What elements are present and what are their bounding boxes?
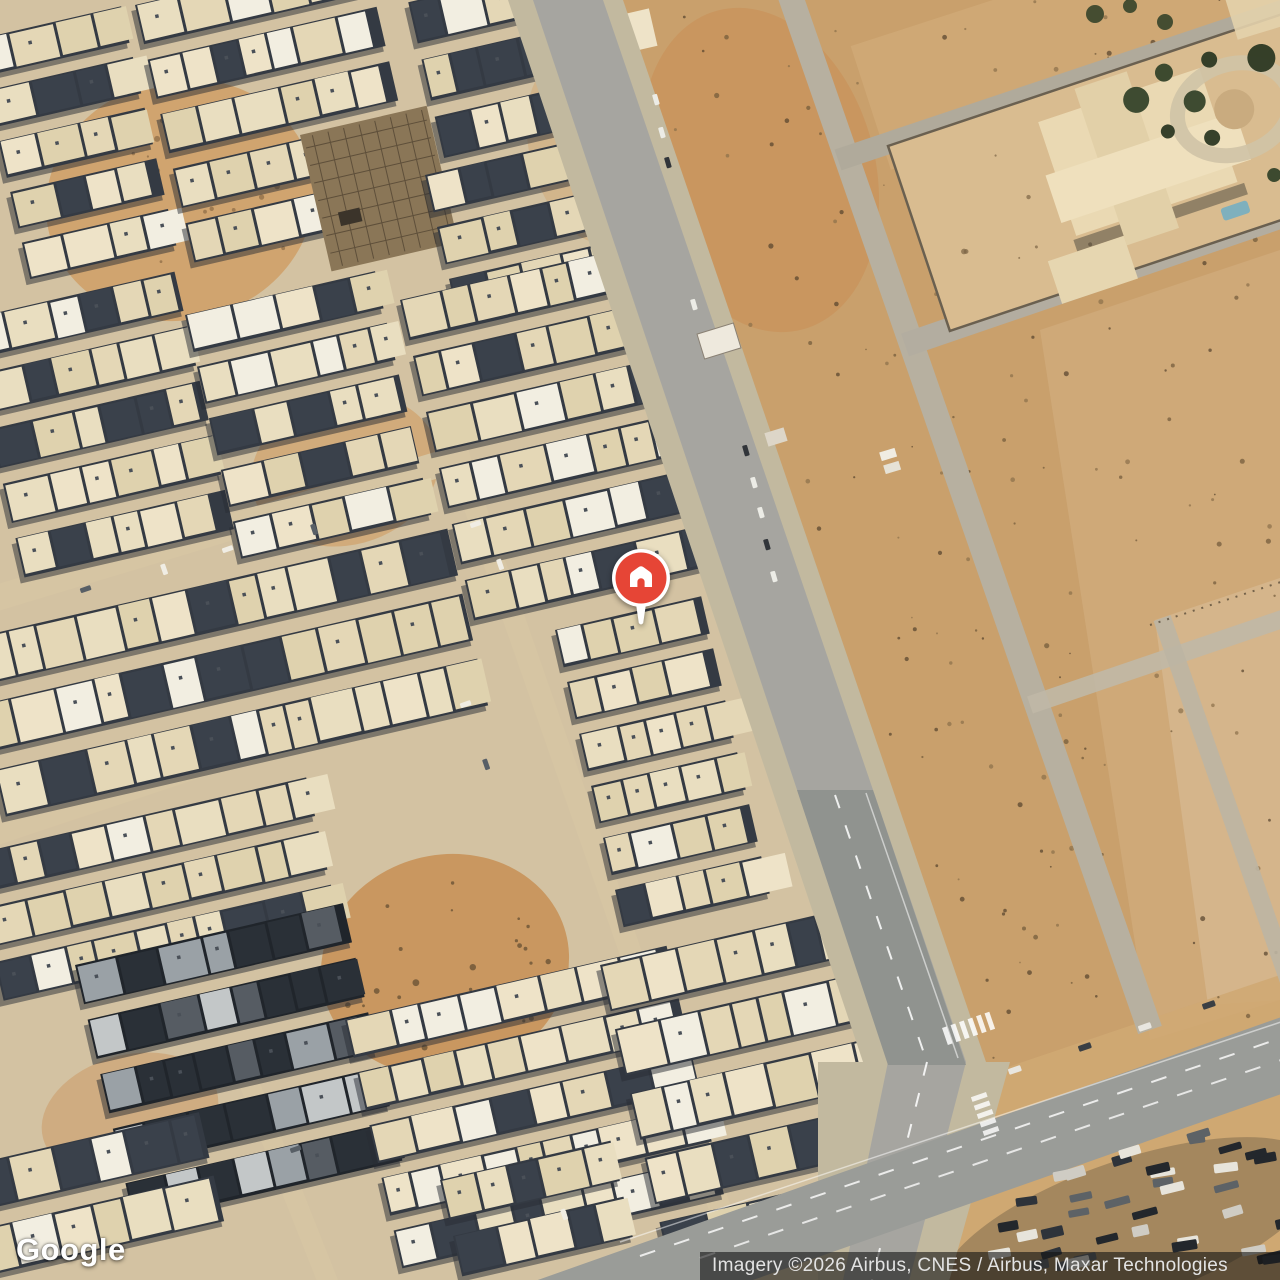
scrub-dot: [897, 637, 900, 640]
scrub-dot: [934, 728, 938, 732]
scrub-dot: [897, 537, 899, 539]
rubble-dot: [470, 964, 476, 970]
scrub-dot: [1043, 467, 1045, 469]
scrub-dot: [834, 302, 839, 307]
scrub-dot: [935, 864, 938, 867]
scrub-dot: [1059, 676, 1061, 678]
scrub-dot: [1084, 748, 1086, 750]
rubble-dot: [451, 881, 454, 884]
scrub-dot: [748, 323, 752, 327]
scrub-dot: [961, 721, 964, 724]
scrub-dot: [1171, 364, 1175, 368]
rubble-dot: [529, 962, 532, 965]
scrub-dot: [674, 128, 677, 131]
scrub-dot: [1264, 952, 1268, 956]
scrub-dot: [1200, 916, 1205, 921]
scrub-dot: [1119, 476, 1122, 479]
rubble-dot: [154, 136, 160, 142]
google-maps-satellite-view: Google Imagery ©2026 Airbus, CNES / Airb…: [0, 0, 1280, 1280]
tree: [1086, 5, 1104, 23]
scrub-dot: [1070, 848, 1072, 850]
scrub-dot: [949, 661, 952, 664]
scrub-dot: [911, 446, 913, 448]
scrub-dot: [1056, 924, 1059, 927]
scrub-dot: [1027, 970, 1032, 975]
scrub-dot: [905, 657, 909, 661]
scrub-dot: [947, 722, 951, 726]
scrub-dot: [1178, 708, 1183, 713]
scrub-dot: [1069, 653, 1071, 655]
scrub-dot: [770, 142, 774, 146]
rubble-dot: [374, 988, 380, 994]
scrub-dot: [986, 979, 989, 982]
scrub-dot: [1018, 802, 1023, 807]
scrub-dot: [724, 35, 729, 40]
rubble-dot: [524, 947, 528, 951]
scrub-dot: [817, 526, 821, 530]
scrub-dot: [1002, 438, 1006, 442]
scrub-dot: [1268, 819, 1271, 822]
scrub-dot: [714, 93, 719, 98]
scrub-dot: [1085, 974, 1090, 979]
rubble-dot: [517, 917, 520, 920]
scrub-dot: [1071, 982, 1073, 984]
scrub-dot: [993, 68, 997, 72]
scrub-dot: [1095, 53, 1097, 55]
rubble-dot: [526, 925, 529, 928]
scrub-dot: [964, 28, 966, 30]
scrub-dot: [1010, 477, 1015, 482]
scrub-dot: [1266, 539, 1271, 544]
rubble-dot: [160, 260, 163, 263]
scrub-dot: [913, 627, 917, 631]
scrub-dot: [1202, 261, 1206, 265]
google-logo[interactable]: Google: [16, 1232, 126, 1268]
scrub-dot: [1050, 866, 1052, 868]
rubble-dot: [397, 995, 401, 999]
scrub-dot: [1267, 524, 1272, 529]
scrub-dot: [989, 764, 993, 768]
scrub-dot: [1213, 581, 1216, 584]
scrub-dot: [1003, 909, 1007, 913]
scrub-dot: [1098, 299, 1103, 304]
scrub-dot: [1104, 15, 1108, 19]
scrub-dot: [1031, 336, 1034, 339]
rubble-dot: [515, 939, 518, 942]
scrub-dot: [834, 30, 836, 32]
scrub-dot: [1095, 468, 1098, 471]
scrub-dot: [683, 16, 686, 19]
scrub-dot: [966, 557, 970, 561]
rubble-dot: [386, 904, 390, 908]
scrub-dot: [1104, 764, 1106, 766]
rubble-dot: [546, 959, 551, 964]
scrub-dot: [885, 362, 889, 366]
scrub-dot: [1240, 459, 1245, 464]
scrub-dot: [1217, 542, 1222, 547]
scrub-dot: [1051, 850, 1055, 854]
scrub-dot: [1041, 775, 1046, 780]
rubble-dot: [203, 210, 207, 214]
scrub-dot: [1170, 730, 1172, 732]
scrub-dot: [1010, 374, 1013, 377]
rubble-dot: [210, 207, 214, 211]
attribution-text: Imagery ©2026 Airbus, CNES / Airbus, Max…: [712, 1255, 1228, 1276]
scrub-dot: [960, 897, 965, 902]
rubble-dot: [232, 208, 236, 212]
scrub-dot: [1033, 935, 1038, 940]
scrub-dot: [1241, 670, 1244, 673]
rubble-dot: [517, 943, 522, 948]
scrub-dot: [889, 733, 892, 736]
rubble-dot: [451, 909, 453, 911]
scrub-dot: [1193, 942, 1195, 944]
scrub-dot: [1208, 349, 1211, 352]
scrub-dot: [911, 617, 913, 619]
scrub-dot: [893, 354, 896, 357]
scrub-dot: [836, 373, 840, 377]
scrub-dot: [806, 479, 811, 484]
scrub-dot: [1214, 494, 1216, 496]
map-attribution-bar: Imagery ©2026 Airbus, CNES / Airbus, Max…: [700, 1252, 1280, 1280]
rubble-dot: [469, 988, 472, 991]
tree: [1157, 14, 1173, 30]
scrub-dot: [856, 82, 859, 85]
scrub-dot: [795, 276, 799, 280]
scrub-dot: [1108, 327, 1110, 329]
rubble-dot: [362, 1004, 365, 1007]
rubble-dot: [259, 195, 264, 200]
scrub-dot: [1167, 417, 1171, 421]
place-marker[interactable]: [609, 546, 673, 638]
scrub-dot: [1217, 996, 1219, 998]
scrub-dot: [865, 349, 867, 351]
scrub-dot: [853, 476, 855, 478]
scrub-dot: [1002, 912, 1005, 915]
marker-stem: [636, 604, 646, 625]
scrub-dot: [1246, 283, 1249, 286]
scrub-dot: [982, 637, 984, 639]
scrub-dot: [1022, 927, 1026, 931]
scrub-dot: [1081, 757, 1084, 760]
scrub-dot: [1069, 591, 1073, 595]
scrub-dot: [840, 210, 844, 214]
rubble-dot: [413, 979, 420, 986]
scrub-dot: [785, 118, 790, 123]
scrub-dot: [1059, 713, 1063, 717]
scrub-dot: [992, 1057, 994, 1059]
scrub-dot: [1135, 539, 1137, 541]
scrub-dot: [975, 629, 977, 631]
scrub-dot: [1125, 459, 1130, 464]
scrub-dot: [1273, 595, 1275, 597]
scrub-dot: [1211, 498, 1214, 501]
scrub-dot: [1189, 504, 1191, 506]
scrub-dot: [1014, 522, 1016, 524]
scrub-dot: [726, 154, 730, 158]
scrub-dot: [788, 65, 790, 67]
scrub-dot: [942, 35, 947, 40]
scrub-dot: [1033, 0, 1036, 3]
rubble-dot: [147, 155, 149, 157]
scrub-dot: [1040, 850, 1043, 853]
scrub-dot: [1044, 643, 1049, 648]
scrub-dot: [1154, 674, 1159, 679]
scrub-dot: [806, 106, 810, 110]
rubble-dot: [399, 947, 403, 951]
scrub-dot: [952, 416, 954, 418]
scrub-dot: [1024, 399, 1028, 403]
scrub-dot: [1235, 731, 1239, 735]
scrub-dot: [1164, 369, 1166, 371]
scrub-dot: [936, 632, 938, 634]
scrub-dot: [1064, 371, 1069, 376]
scrub-dot: [702, 50, 705, 53]
scrub-dot: [883, 184, 885, 186]
scrub-dot: [1234, 296, 1238, 300]
scrub-dot: [1107, 51, 1112, 56]
scrub-dot: [1246, 1014, 1250, 1018]
scrub-dot: [833, 220, 837, 224]
scrub-dot: [1019, 962, 1021, 964]
scrub-dot: [808, 341, 812, 345]
scrub-dot: [938, 551, 942, 555]
scrub-dot: [921, 756, 923, 758]
scrub-dot: [1064, 739, 1069, 744]
satellite-imagery[interactable]: [0, 0, 1280, 1280]
scrub-dot: [1211, 704, 1215, 708]
scrub-dot: [1006, 1010, 1011, 1015]
scrub-dot: [1054, 67, 1059, 72]
scrub-dot: [768, 243, 773, 248]
scrub-dot: [819, 132, 822, 135]
scrub-dot: [958, 878, 960, 880]
scrub-dot: [1095, 995, 1098, 998]
